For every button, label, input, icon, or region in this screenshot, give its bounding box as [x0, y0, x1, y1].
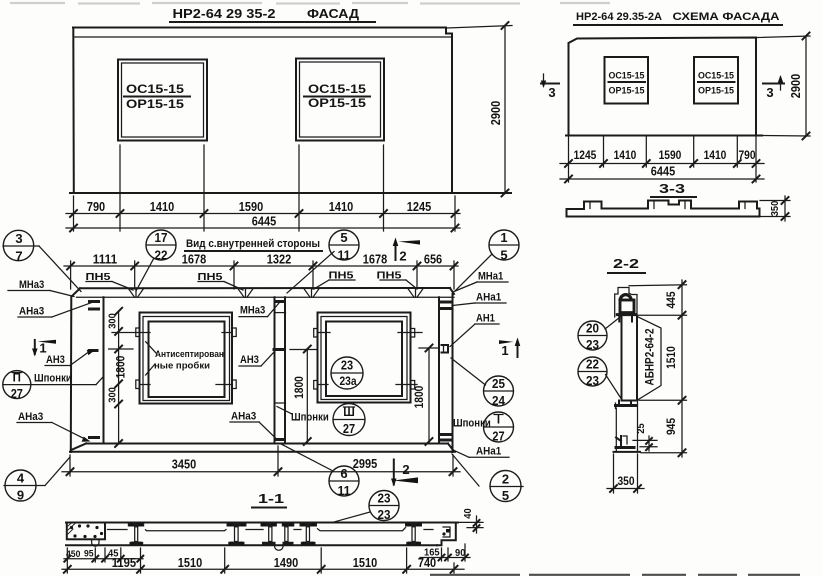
svg-text:П: П	[13, 373, 21, 385]
svg-text:1-1: 1-1	[258, 491, 284, 506]
svg-text:МНа1: МНа1	[478, 271, 503, 283]
svg-text:1800: 1800	[116, 356, 128, 379]
svg-text:790: 790	[87, 200, 105, 214]
svg-text:23а: 23а	[339, 376, 357, 388]
svg-text:2: 2	[402, 462, 409, 477]
svg-text:НР2-64 29 35-2: НР2-64 29 35-2	[173, 6, 276, 21]
svg-text:МНа3: МНа3	[240, 305, 265, 317]
svg-text:I: I	[497, 415, 500, 427]
svg-text:25: 25	[492, 376, 505, 391]
svg-text:1510: 1510	[353, 556, 377, 570]
svg-text:6: 6	[340, 466, 347, 481]
svg-text:27: 27	[492, 430, 504, 444]
svg-text:1111: 1111	[93, 253, 117, 267]
svg-text:445: 445	[666, 291, 678, 309]
svg-text:790: 790	[738, 150, 755, 162]
svg-text:АН3: АН3	[240, 354, 259, 366]
svg-text:27: 27	[11, 387, 23, 401]
svg-text:ОС15-15: ОС15-15	[698, 71, 735, 82]
svg-text:1410: 1410	[329, 200, 353, 214]
svg-text:НР2-64 29.35-2А: НР2-64 29.35-2А	[576, 11, 662, 23]
svg-text:Ш: Ш	[343, 407, 355, 419]
svg-text:МНа3: МНа3	[19, 279, 44, 291]
svg-text:23: 23	[341, 359, 353, 373]
svg-text:АН1: АН1	[476, 313, 495, 325]
svg-text:АНа3: АНа3	[231, 411, 256, 423]
svg-text:1245: 1245	[407, 200, 431, 214]
svg-text:945: 945	[666, 417, 678, 435]
svg-text:350: 350	[617, 476, 634, 488]
svg-text:1678: 1678	[182, 253, 206, 267]
svg-text:АН3: АН3	[46, 354, 65, 366]
svg-text:23: 23	[378, 507, 391, 522]
svg-text:ные пробки: ные пробки	[154, 361, 210, 372]
svg-text:АНа1: АНа1	[476, 292, 501, 304]
svg-text:22: 22	[155, 248, 168, 263]
svg-text:22: 22	[586, 357, 599, 372]
svg-text:ОС15-15: ОС15-15	[308, 84, 367, 96]
svg-text:Шпонки: Шпонки	[34, 373, 72, 385]
svg-text:2: 2	[399, 249, 406, 264]
svg-text:Антисептирован: Антисептирован	[155, 349, 224, 360]
svg-text:ОР15-15: ОР15-15	[126, 99, 185, 111]
svg-text:1: 1	[501, 343, 508, 358]
svg-text:23: 23	[378, 491, 391, 506]
svg-text:20: 20	[586, 321, 599, 336]
svg-text:23: 23	[586, 337, 599, 352]
svg-text:1800: 1800	[294, 376, 306, 399]
svg-text:СХЕМА ФАСАДА: СХЕМА ФАСАДА	[673, 11, 780, 23]
svg-text:2: 2	[502, 472, 509, 487]
svg-text:АНа3: АНа3	[19, 306, 44, 318]
svg-text:1410: 1410	[704, 150, 727, 162]
svg-text:Вид с.внутренней стороны: Вид с.внутренней стороны	[186, 238, 320, 250]
svg-text:АНа3: АНа3	[18, 411, 43, 423]
svg-text:40: 40	[462, 508, 474, 519]
svg-text:6445: 6445	[252, 215, 276, 229]
svg-text:9: 9	[17, 488, 24, 503]
svg-text:27: 27	[343, 422, 355, 436]
svg-text:24: 24	[492, 393, 506, 408]
svg-text:740: 740	[418, 556, 436, 570]
svg-text:3: 3	[548, 85, 555, 100]
svg-text:1800: 1800	[414, 386, 426, 409]
svg-text:95: 95	[84, 549, 94, 560]
svg-text:1590: 1590	[659, 150, 682, 162]
svg-text:11: 11	[338, 483, 351, 498]
svg-text:5: 5	[500, 248, 507, 263]
svg-text:4: 4	[17, 471, 25, 486]
svg-text:300: 300	[107, 313, 119, 329]
svg-text:3: 3	[766, 85, 773, 100]
svg-text:1678: 1678	[363, 253, 387, 267]
svg-text:АБНР2-64-2: АБНР2-64-2	[645, 329, 657, 386]
svg-text:1410: 1410	[614, 150, 637, 162]
svg-text:1: 1	[500, 230, 507, 245]
svg-text:1490: 1490	[274, 556, 298, 570]
svg-text:3-3: 3-3	[659, 181, 685, 196]
svg-text:2900: 2900	[789, 74, 803, 98]
svg-text:3450: 3450	[172, 458, 196, 472]
svg-text:1322: 1322	[267, 253, 291, 267]
svg-text:1195: 1195	[112, 556, 136, 570]
svg-text:5: 5	[340, 230, 347, 245]
svg-text:656: 656	[424, 253, 442, 267]
svg-text:7: 7	[15, 249, 22, 264]
svg-text:ОР15-15: ОР15-15	[698, 86, 735, 97]
svg-text:1245: 1245	[574, 150, 597, 162]
svg-text:2900: 2900	[489, 101, 503, 125]
svg-text:ОС15-15: ОС15-15	[609, 71, 646, 82]
svg-text:1590: 1590	[239, 200, 263, 214]
svg-text:350: 350	[769, 201, 781, 217]
svg-text:АНа1: АНа1	[476, 446, 501, 458]
svg-text:2-2: 2-2	[613, 256, 639, 271]
svg-text:ОР15-15: ОР15-15	[609, 86, 646, 97]
svg-text:ФАСАД: ФАСАД	[307, 6, 360, 21]
svg-text:1510: 1510	[178, 556, 202, 570]
svg-text:ОС15-15: ОС15-15	[126, 84, 185, 96]
svg-text:1510: 1510	[666, 346, 678, 369]
svg-text:Шпонки: Шпонки	[291, 412, 329, 424]
svg-text:2995: 2995	[353, 457, 377, 471]
svg-text:6445: 6445	[651, 165, 675, 179]
svg-text:17: 17	[155, 230, 168, 245]
svg-text:300: 300	[107, 387, 119, 403]
svg-text:25: 25	[635, 423, 647, 434]
svg-text:23: 23	[586, 373, 599, 388]
svg-text:ОР15-15: ОР15-15	[308, 98, 367, 110]
svg-text:5: 5	[502, 488, 509, 503]
svg-text:11: 11	[338, 248, 351, 263]
svg-text:1410: 1410	[150, 200, 174, 214]
svg-text:3: 3	[15, 231, 22, 246]
